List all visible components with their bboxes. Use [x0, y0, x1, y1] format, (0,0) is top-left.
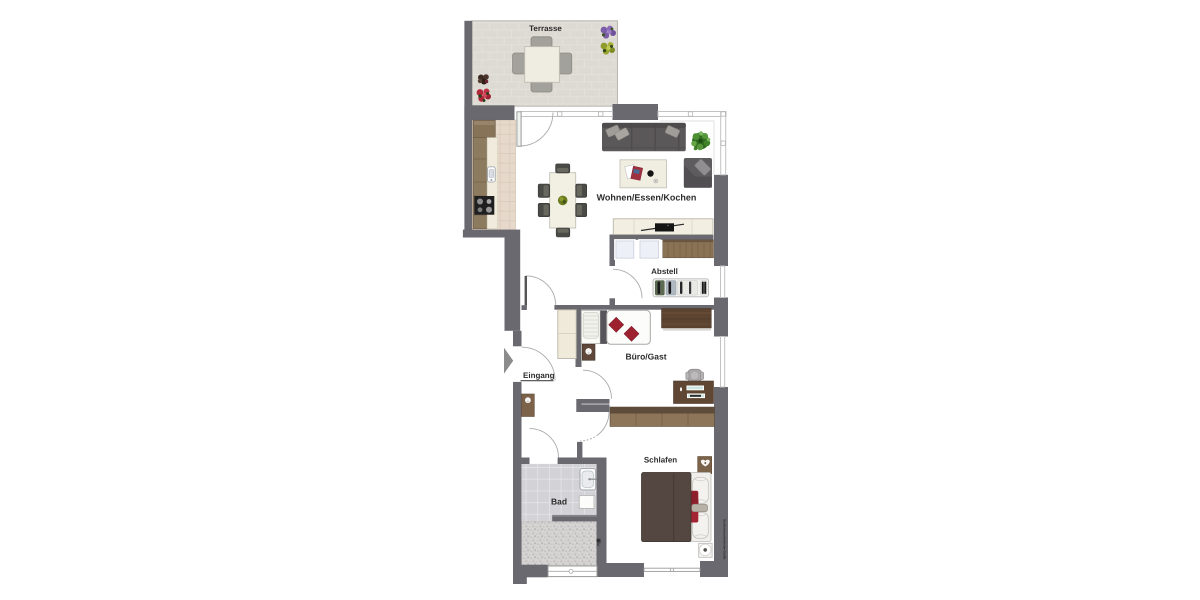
svg-text:Büro/Gast: Büro/Gast	[625, 352, 666, 362]
svg-text:Terrasse: Terrasse	[529, 24, 562, 33]
svg-text:Schlafen: Schlafen	[644, 456, 677, 465]
svg-text:Studentenwohnheim-Grafik: Studentenwohnheim-Grafik	[723, 519, 727, 560]
svg-text:Wohnen/Essen/Kochen: Wohnen/Essen/Kochen	[597, 193, 697, 203]
svg-text:Eingang: Eingang	[523, 371, 555, 380]
svg-text:Abstell: Abstell	[651, 267, 678, 276]
svg-text:Bad: Bad	[551, 497, 567, 507]
